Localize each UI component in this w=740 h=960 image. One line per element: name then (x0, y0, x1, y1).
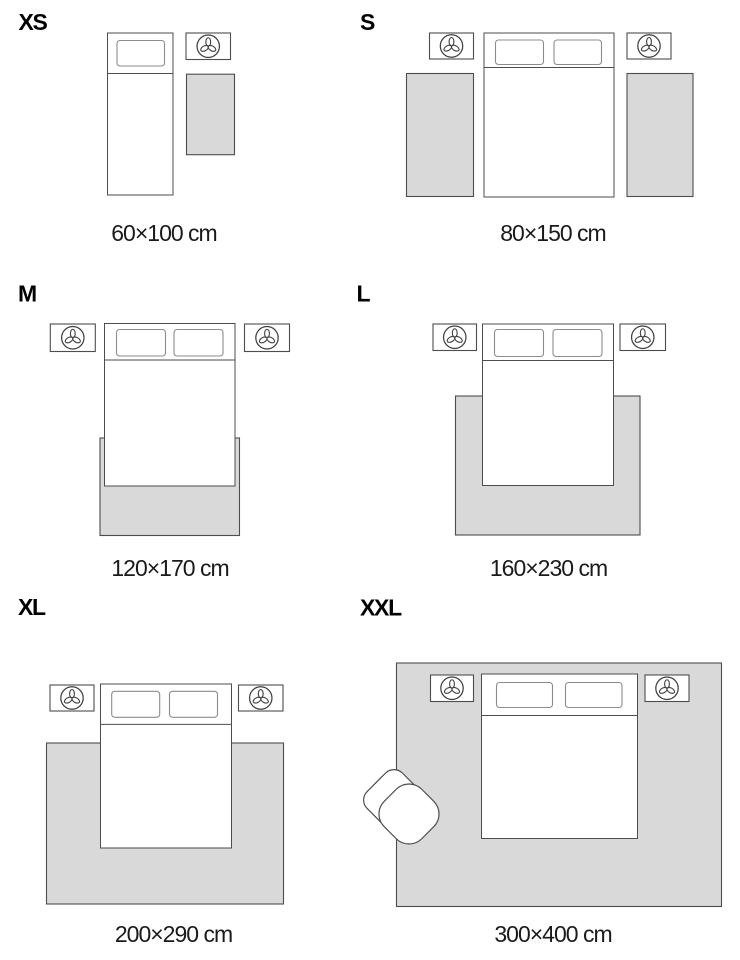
svg-text:80×150 cm: 80×150 cm (500, 220, 605, 246)
svg-text:200×290 cm: 200×290 cm (115, 921, 232, 947)
svg-text:300×400 cm: 300×400 cm (494, 921, 611, 947)
svg-text:XXL: XXL (360, 595, 402, 621)
svg-text:120×170 cm: 120×170 cm (111, 555, 228, 581)
svg-text:L: L (357, 281, 371, 307)
svg-text:S: S (360, 9, 375, 35)
svg-text:XL: XL (18, 594, 46, 620)
svg-text:60×100 cm: 60×100 cm (111, 220, 216, 246)
svg-text:XS: XS (19, 9, 48, 35)
svg-text:160×230 cm: 160×230 cm (490, 555, 607, 581)
svg-text:M: M (18, 281, 36, 307)
